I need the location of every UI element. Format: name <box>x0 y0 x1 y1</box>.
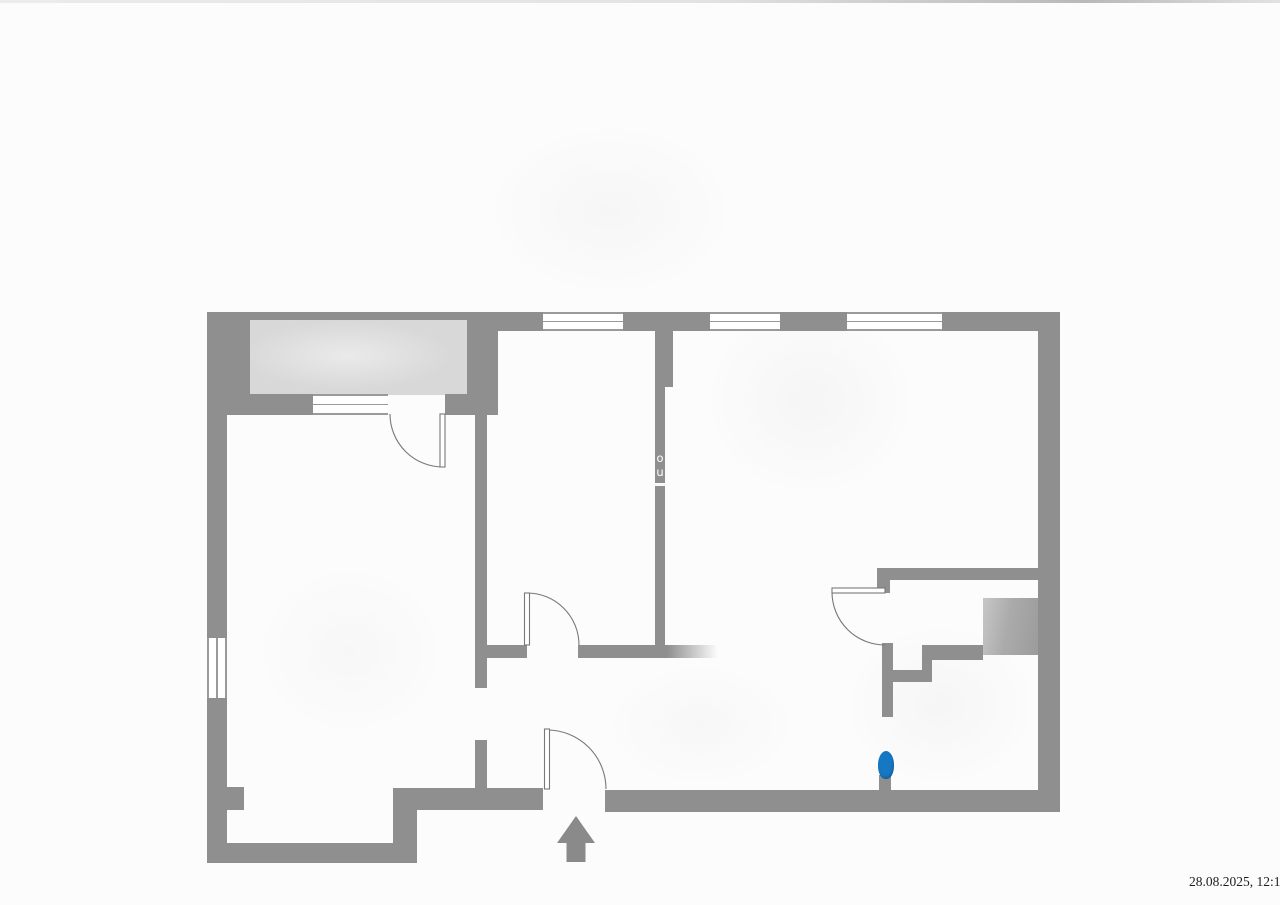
door-leaf <box>545 729 550 789</box>
location-dot-icon <box>878 751 894 779</box>
door-arc <box>832 592 885 645</box>
door-leaf <box>440 414 445 467</box>
door-leaf <box>525 593 530 645</box>
entrance-up-arrow-icon <box>557 816 595 862</box>
door-arc <box>527 593 579 645</box>
door-arc <box>390 414 443 467</box>
door-symbols <box>0 0 1280 905</box>
door-leaf <box>832 588 885 593</box>
door-arc <box>547 730 606 789</box>
scanned-floor-plan-page: { "scan": { "timestamp": "28.08.2025, 12… <box>0 0 1280 905</box>
scan-timestamp: 28.08.2025, 12:18 <box>1189 874 1280 890</box>
floor-plan: o u <box>0 0 1280 905</box>
